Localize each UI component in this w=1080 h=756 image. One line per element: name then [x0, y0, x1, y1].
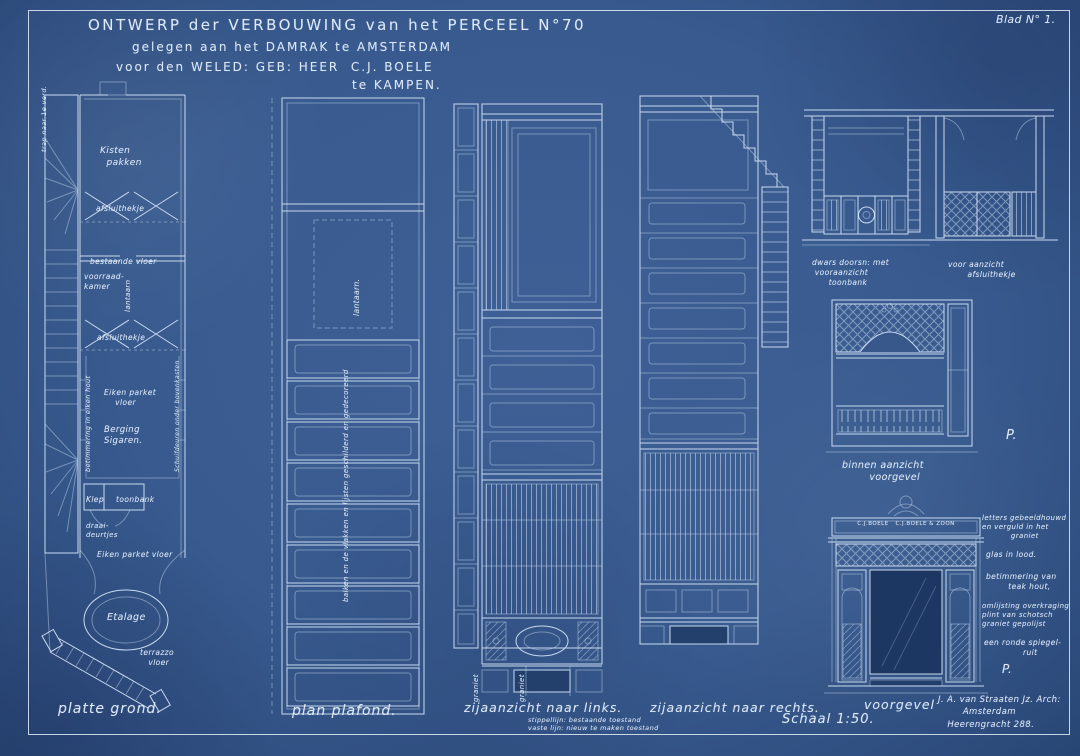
label-trap: trap naar 1e verd.	[40, 86, 48, 152]
blueprint-sheet: ONTWERP der VERBOUWING van het PERCEEL N…	[0, 0, 1080, 756]
label-kisten-pakken: Kisten pakken	[100, 146, 142, 169]
label-lantaarn-plafond: lantaarn.	[352, 279, 362, 316]
note-omlijsting: omlijsting overkraging plint van schotsc…	[982, 602, 1080, 629]
note-spiegelruit: een ronde spiegel- ruit	[984, 638, 1079, 658]
note-teak-hout: betimmering van teak hout,	[986, 572, 1076, 592]
storefront-drawing	[824, 486, 988, 694]
label-voorraad-kamer: voorraad- kamer	[84, 272, 124, 292]
label-klep: Klep	[86, 495, 104, 505]
caption-floor-plan: platte grond.	[58, 700, 162, 718]
note-letters-graniet: letters gebeeldhouwd en verguld in het g…	[982, 514, 1078, 541]
counter-detail-drawing	[800, 98, 932, 256]
caption-inner-front: binnen aanzicht voorgevel	[842, 460, 924, 485]
label-graniet-2: graniet	[518, 674, 527, 702]
label-graniet-1: graniet	[472, 674, 481, 702]
label-p-2: P.	[1002, 662, 1012, 678]
label-toonbank: toonbank	[116, 495, 155, 505]
legend-note: stippellijn: bestaande toestand vaste li…	[528, 716, 659, 733]
label-lantaarn-plan: lantaarn	[124, 279, 133, 312]
caption-counter-detail: dwars doorsn: met vooraanzicht toonbank	[812, 258, 889, 287]
label-betimmering: betimmering in eiken hout	[84, 376, 92, 472]
caption-gate-detail: voor aanzicht afsluithekje	[948, 260, 1016, 280]
note-glas-in-lood: glas in lood.	[986, 550, 1037, 560]
label-terrazzo: terrazzo vloer	[140, 648, 174, 668]
label-afsluithekje-2: afsluithekje	[97, 333, 145, 343]
label-etalage: Etalage	[107, 612, 146, 624]
caption-ceiling-plan: plan plafond.	[292, 702, 397, 720]
label-draaideurtjes: draai- deurtjes	[86, 522, 118, 540]
sheet-title-line2: gelegen aan het DAMRAK te AMSTERDAM	[132, 40, 452, 56]
label-berging-sigaren: Berging Sigaren.	[104, 425, 142, 447]
architect-signature: J. A. van Straaten Jz. Arch: Amsterdam H…	[938, 694, 1070, 731]
label-eiken-parket-2: Eiken parket vloer	[97, 550, 173, 560]
gate-detail-drawing	[920, 98, 1060, 256]
label-eiken-parket-1: Eiken parket vloer	[104, 388, 156, 408]
left-side-view-drawing	[450, 96, 608, 700]
label-afsluithekje-1: afsluithekje	[96, 204, 144, 214]
inner-front-drawing	[826, 294, 978, 460]
scale-label: Schaal 1:50.	[782, 712, 875, 729]
sheet-number: Blad N° 1.	[996, 13, 1056, 27]
label-bestaande-vloer: bestaande vloer	[90, 257, 157, 267]
storefront-sign-text: C.J.BOELE C.J.BOELE & ZOON	[836, 521, 976, 528]
sheet-title-line3: voor den WELED: GEB: HEER C.J. BOELE	[116, 60, 434, 76]
label-balken-note: balken en de vlakken en lijsten geschild…	[342, 369, 351, 602]
label-schuifdeuren: Schuifdeuren onder bovenkasten	[174, 360, 182, 472]
sheet-title-line1: ONTWERP der VERBOUWING van het PERCEEL N…	[88, 16, 586, 36]
right-side-view-drawing	[634, 90, 794, 694]
caption-storefront: voorgevel	[864, 697, 935, 713]
label-p-1: P.	[1006, 428, 1017, 445]
caption-left-view: zijaanzicht naar links.	[464, 700, 622, 716]
